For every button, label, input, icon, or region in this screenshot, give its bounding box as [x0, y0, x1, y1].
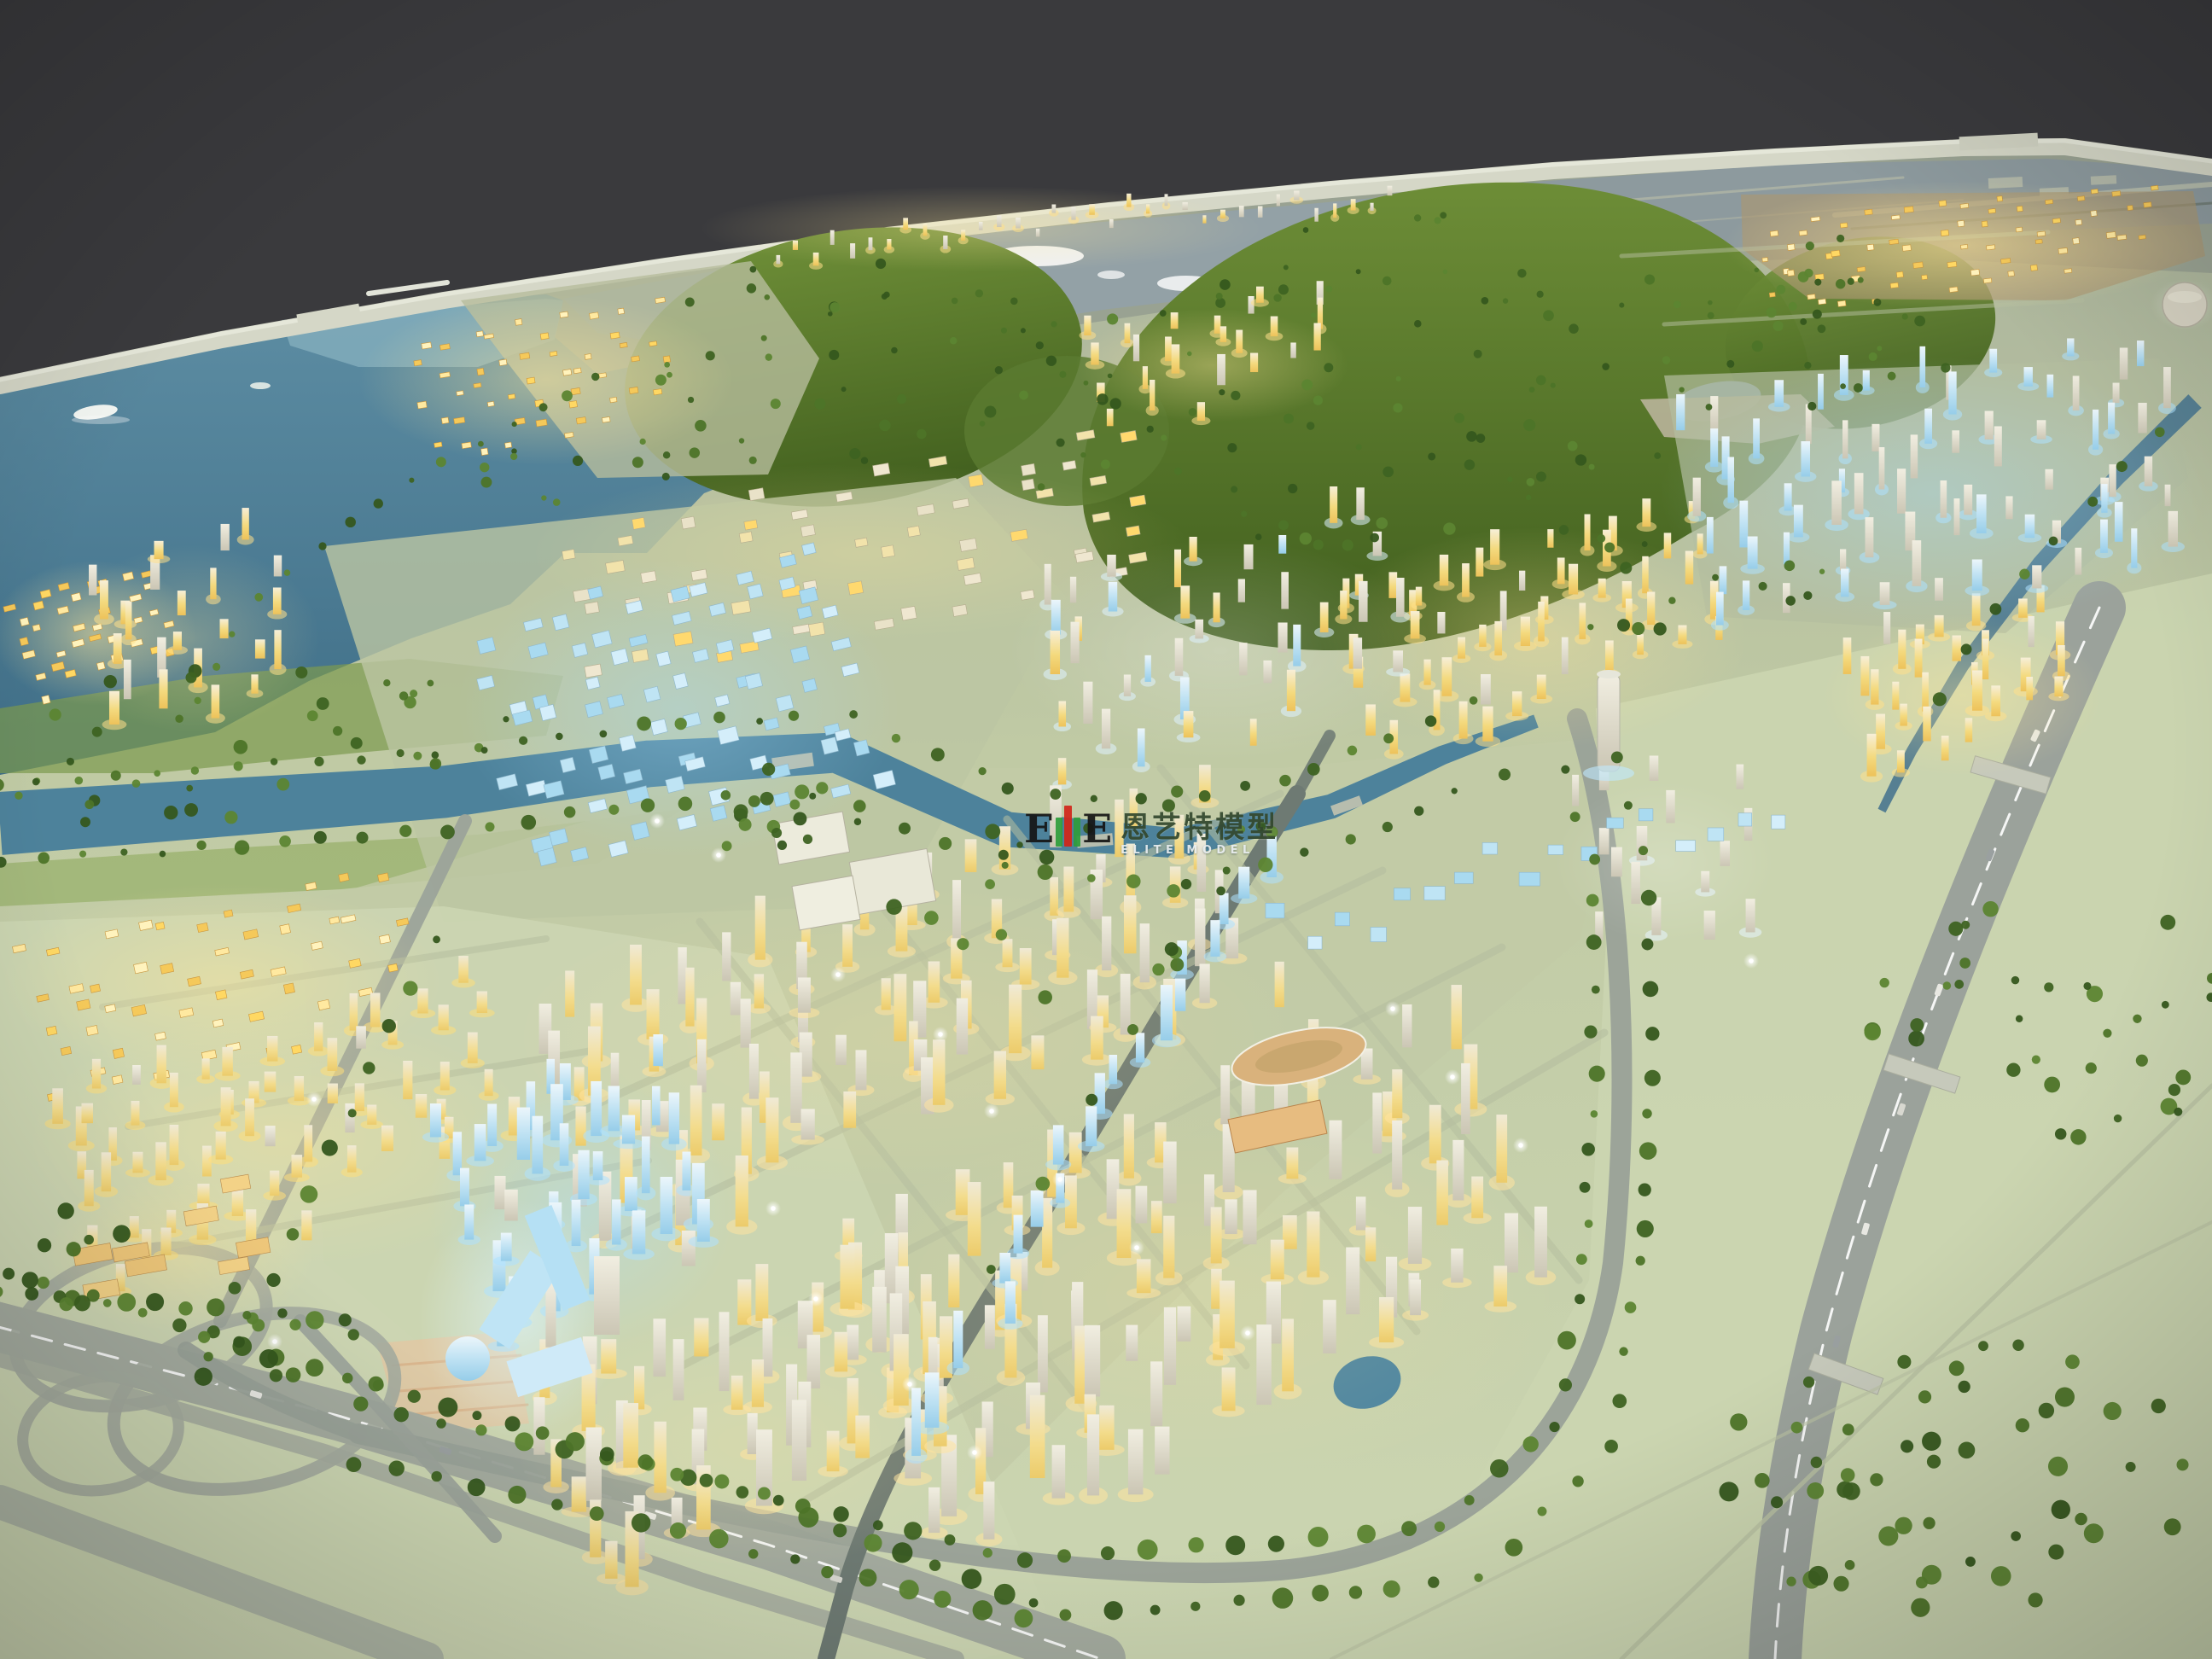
- vignette-layer: [0, 0, 2212, 1659]
- scale-model-scene: [0, 0, 2212, 1659]
- photo-of-city-scale-model: E E 恩艺特模型 ELITE MODEL: [0, 0, 2212, 1659]
- vignette: [0, 0, 2212, 1659]
